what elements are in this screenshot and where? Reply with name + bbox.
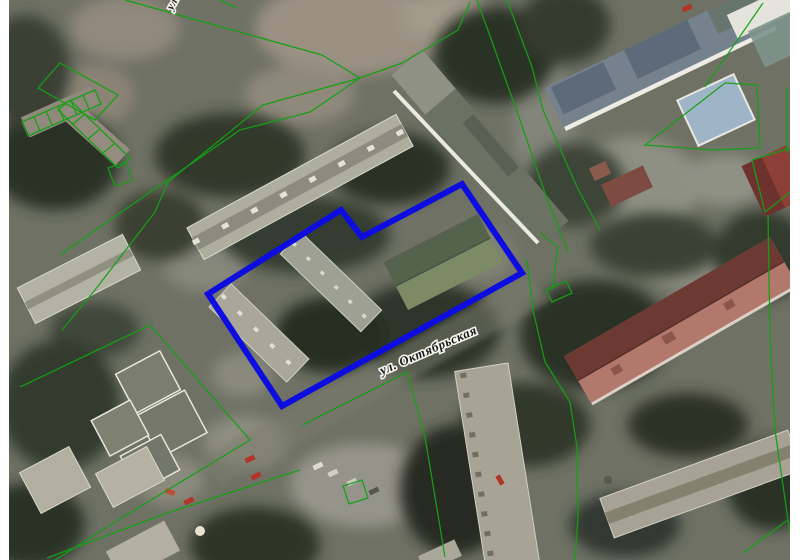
- right-page-margin: [790, 0, 800, 560]
- cadastral-map-viewport[interactable]: ул. Октябрьская ул.: [0, 0, 800, 560]
- left-page-margin: [0, 0, 9, 560]
- aerial-map-canvas[interactable]: ул. Октябрьская ул.: [0, 0, 800, 560]
